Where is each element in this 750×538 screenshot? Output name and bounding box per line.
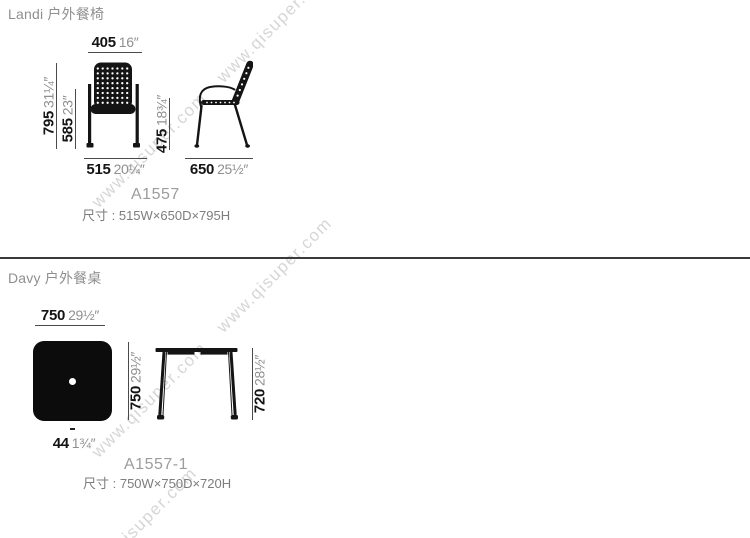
dim-chair-seat-width: 51520¼″ bbox=[84, 158, 147, 177]
dim-chair-seat-height: 47518¾″ bbox=[154, 98, 170, 150]
mm-value: 750 bbox=[128, 386, 145, 410]
inch-value: 25½″ bbox=[217, 161, 248, 177]
inch-value: 29½″ bbox=[68, 307, 99, 323]
inch-value: 18¾″ bbox=[154, 95, 170, 126]
dim-chair-total-height: 79531¼″ bbox=[41, 63, 57, 149]
section-divider bbox=[0, 257, 750, 259]
dim-chair-depth: 65025½″ bbox=[185, 158, 253, 177]
inch-value: 16″ bbox=[119, 34, 139, 50]
mm-value: 795 bbox=[41, 111, 58, 135]
inch-value: 20¼″ bbox=[114, 161, 145, 177]
chair-size-label: 尺寸 : 515W×650D×795H bbox=[82, 205, 230, 224]
dim-table-depth: 75029½″ bbox=[128, 342, 144, 420]
dim-chair-back-width: 40516″ bbox=[88, 35, 142, 53]
mm-value: 515 bbox=[86, 161, 110, 178]
dim-table-width: 75029½″ bbox=[35, 308, 105, 326]
watermark-text: www.qisuper.com bbox=[213, 213, 337, 337]
mm-value: 650 bbox=[190, 161, 214, 178]
inch-value: 23″ bbox=[60, 96, 76, 116]
table-section-title: Davy 户外餐桌 bbox=[8, 268, 102, 288]
spec-sheet-page: www.qisuper.com www.qisuper.com www.qisu… bbox=[0, 0, 750, 538]
thickness-tick-mark bbox=[70, 428, 75, 430]
table-top-view-drawing bbox=[33, 341, 112, 421]
mm-value: 475 bbox=[154, 129, 171, 153]
mm-value: 44 bbox=[53, 435, 69, 452]
mm-value: 585 bbox=[60, 118, 77, 142]
dim-chair-armrest-height: 58523″ bbox=[60, 89, 76, 149]
mm-value: 720 bbox=[252, 389, 269, 413]
inch-value: 29½″ bbox=[128, 352, 144, 383]
table-hole-dot bbox=[69, 378, 76, 385]
chair-side-view-drawing bbox=[187, 60, 253, 150]
table-size-label: 尺寸 : 750W×750D×720H bbox=[83, 473, 231, 492]
dim-table-top-thickness: 441¾″ bbox=[48, 436, 100, 451]
table-side-view-drawing bbox=[155, 346, 240, 421]
chair-front-view-drawing bbox=[86, 62, 140, 150]
inch-value: 28½″ bbox=[252, 355, 268, 386]
chair-model-number: A1557 bbox=[131, 186, 180, 204]
dim-table-height: 72028½″ bbox=[252, 348, 268, 420]
table-model-number: A1557-1 bbox=[124, 456, 188, 474]
mm-value: 405 bbox=[92, 34, 116, 51]
mm-value: 750 bbox=[41, 307, 65, 324]
inch-value: 1¾″ bbox=[72, 435, 96, 451]
chair-section-title: Landi 户外餐椅 bbox=[8, 4, 104, 24]
inch-value: 31¼″ bbox=[41, 77, 57, 108]
